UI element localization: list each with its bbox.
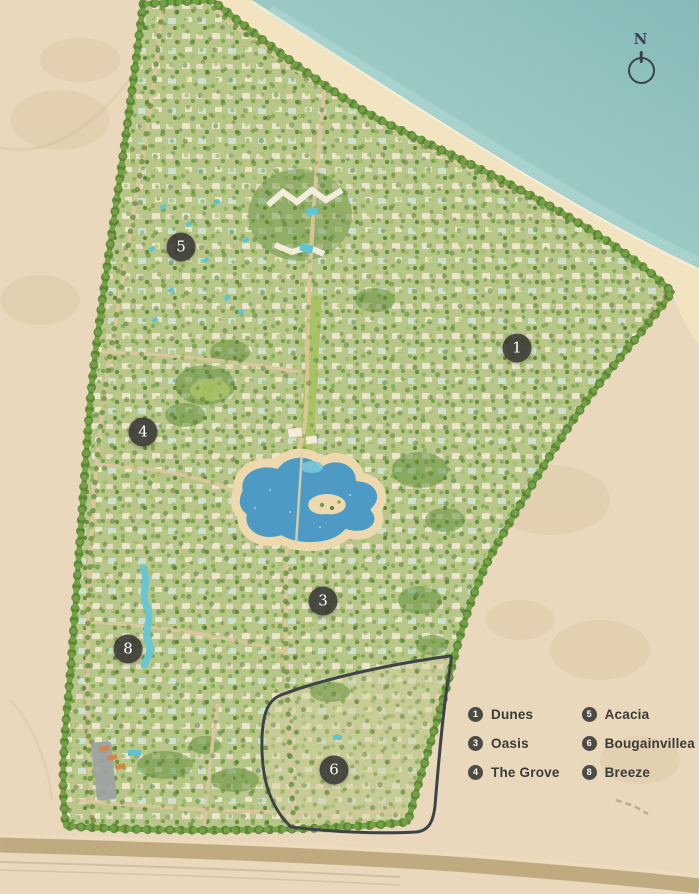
map-marker-oasis[interactable]: 3 <box>309 587 338 616</box>
legend-marker-bougainvillea: 6 <box>582 736 597 751</box>
legend-item-dunes: 1 Dunes <box>468 706 560 722</box>
legend-marker-breeze: 8 <box>582 765 597 780</box>
legend-marker-dunes: 1 <box>468 707 483 722</box>
legend-column-1: 1 Dunes 3 Oasis 4 The Grove <box>468 706 560 780</box>
legend-item-the-grove: 4 The Grove <box>468 764 560 780</box>
legend-item-breeze: 8 Breeze <box>582 764 695 780</box>
legend-label-dunes: Dunes <box>491 707 533 722</box>
map-marker-dunes[interactable]: 1 <box>503 334 532 363</box>
compass: N <box>617 30 665 84</box>
legend: 1 Dunes 3 Oasis 4 The Grove 5 Acacia 6 B… <box>468 706 695 780</box>
map-marker-bougainvillea[interactable]: 6 <box>320 756 349 785</box>
compass-needle-icon <box>640 51 643 63</box>
legend-label-oasis: Oasis <box>491 736 529 751</box>
legend-label-the-grove: The Grove <box>491 765 560 780</box>
legend-marker-oasis: 3 <box>468 736 483 751</box>
map-marker-the-grove[interactable]: 4 <box>129 418 158 447</box>
map-marker-acacia[interactable]: 5 <box>167 233 196 262</box>
legend-item-acacia: 5 Acacia <box>582 706 695 722</box>
compass-north-label: N <box>617 30 665 48</box>
legend-label-acacia: Acacia <box>605 707 650 722</box>
legend-label-breeze: Breeze <box>605 765 650 780</box>
legend-item-bougainvillea: 6 Bougainvillea <box>582 735 695 751</box>
legend-column-2: 5 Acacia 6 Bougainvillea 8 Breeze <box>582 706 695 780</box>
lake <box>235 452 381 547</box>
map-marker-breeze[interactable]: 8 <box>114 635 143 664</box>
legend-marker-acacia: 5 <box>582 707 597 722</box>
legend-label-bougainvillea: Bougainvillea <box>605 736 695 751</box>
legend-item-oasis: 3 Oasis <box>468 735 560 751</box>
masterplan-map: 1 3 4 5 6 8 N 1 Dunes 3 Oasis 4 The Grov… <box>0 0 699 894</box>
legend-marker-the-grove: 4 <box>468 765 483 780</box>
compass-icon <box>628 57 655 84</box>
